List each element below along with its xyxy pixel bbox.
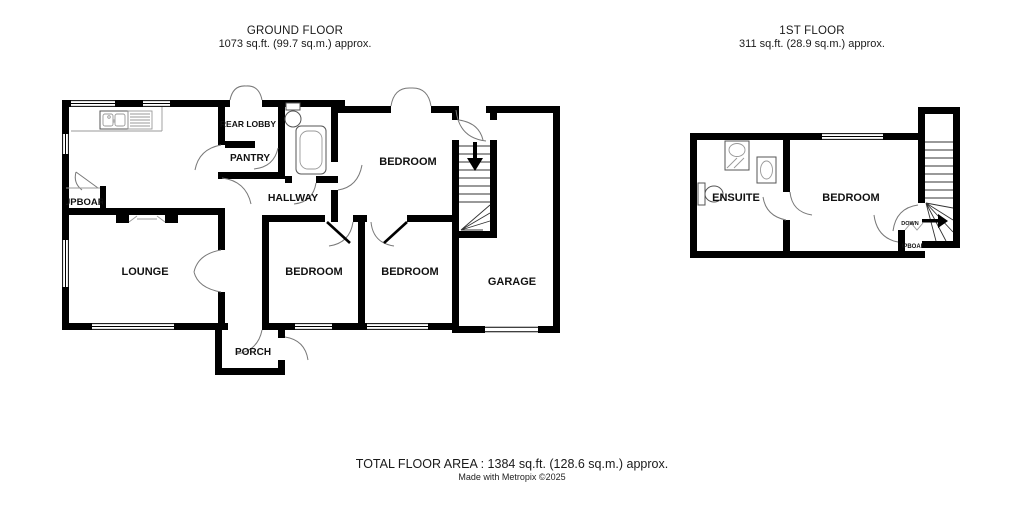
room-label-bedroom-front-left: BEDROOM [285, 266, 342, 278]
room-label-lounge: LOUNGE [121, 266, 168, 278]
kitchen-sink-icon [71, 107, 162, 131]
floorplan-drawing: REAR LOBBY PANTRY HALLWAY CUPBOARD LOUNG… [0, 0, 1024, 524]
room-label-first-bedroom: BEDROOM [822, 192, 879, 204]
floorplan-page: GROUND FLOOR 1073 sq.ft. (99.7 sq.m.) ap… [0, 0, 1024, 524]
ground-staircase [459, 142, 490, 230]
porch-front-door-swing [285, 337, 308, 360]
ground-floor-plan: REAR LOBBY PANTRY HALLWAY CUPBOARD LOUNG… [57, 86, 560, 375]
rear-bedroom-door-swing [338, 165, 362, 190]
back-door-swing [230, 86, 262, 100]
stairs-down-arrow [922, 219, 938, 223]
stairs-up-arrow [473, 142, 477, 158]
room-label-rear-lobby: REAR LOBBY [220, 119, 277, 129]
lounge-double-door-swing [194, 250, 221, 292]
total-floor-area-text: TOTAL FLOOR AREA : 1384 sq.ft. (128.6 sq… [0, 457, 1024, 471]
french-door-swing [391, 88, 431, 106]
ensuite-door-swing [763, 197, 786, 220]
room-label-bedroom-rear: BEDROOM [379, 156, 436, 168]
first-walls [690, 107, 960, 258]
first-room-labels: ENSUITE BEDROOM CUPBOARD [712, 192, 930, 250]
first-windows [822, 134, 883, 140]
room-label-bedroom-front-middle: BEDROOM [381, 266, 438, 278]
stairs-down-label: DOWN [901, 221, 918, 227]
room-label-pantry: PANTRY [230, 153, 270, 164]
room-label-porch: PORCH [235, 347, 271, 358]
shower-icon [725, 141, 749, 170]
toilet-icon-first [698, 183, 705, 205]
cupboard-door-swing [75, 172, 98, 190]
first-staircase: DOWN [901, 142, 953, 241]
metropix-credit-text: Made with Metropix ©2025 [0, 472, 1024, 482]
first-floor-plan: DOWN ENSUITE BEDROOM CUPBOARD [690, 107, 960, 258]
bathroom-fixtures [285, 103, 326, 174]
room-label-hallway: HALLWAY [268, 192, 318, 204]
room-label-ensuite: ENSUITE [712, 192, 760, 204]
garage-door-line [485, 327, 538, 331]
room-label-garage: GARAGE [488, 276, 536, 288]
pantry-door-swing [195, 145, 221, 170]
bathtub-icon [296, 126, 326, 174]
toilet-icon [286, 103, 300, 110]
